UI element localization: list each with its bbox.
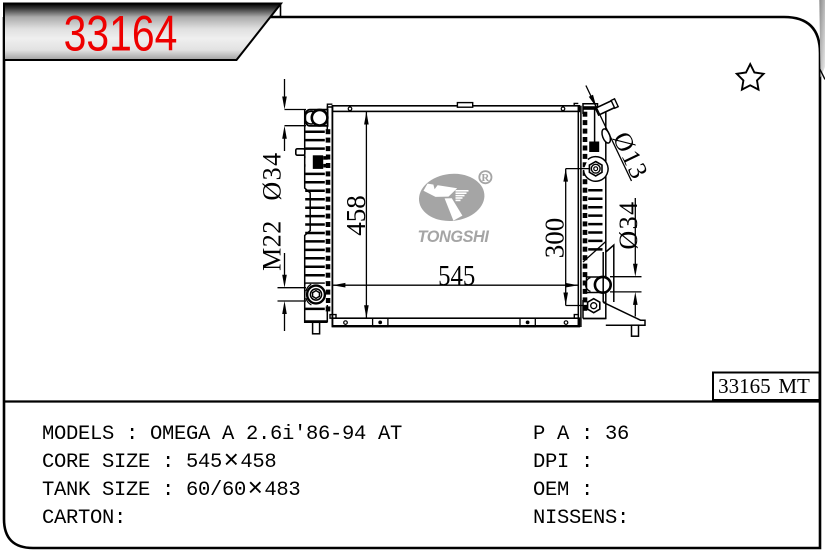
svg-text:M22: M22 (258, 220, 287, 271)
svg-text:TONGSHI: TONGSHI (417, 228, 489, 246)
svg-text:NISSENS:: NISSENS: (533, 507, 629, 530)
svg-text:458: 458 (341, 195, 371, 236)
svg-text:DPI :: DPI : (533, 451, 593, 474)
svg-text:Ø34: Ø34 (258, 151, 287, 200)
svg-text:CARTON:: CARTON: (42, 507, 126, 530)
svg-text:OEM :: OEM : (533, 479, 593, 502)
svg-text:TANK SIZE : 60/60×483: TANK SIZE : 60/60×483 (42, 474, 300, 504)
svg-text:33164: 33164 (64, 4, 178, 61)
svg-text:R: R (481, 172, 490, 184)
svg-text:33165 MT: 33165 MT (718, 374, 810, 398)
svg-text:CORE SIZE : 545×458: CORE SIZE : 545×458 (42, 446, 276, 476)
svg-text:Ø13: Ø13 (607, 127, 654, 184)
svg-text:545: 545 (438, 260, 475, 292)
svg-text:Ø34: Ø34 (614, 200, 643, 249)
svg-text:300: 300 (540, 218, 570, 259)
svg-text:P A : 36: P A : 36 (533, 423, 629, 446)
svg-text:MODELS : OMEGA A 2.6i'86-94 AT: MODELS : OMEGA A 2.6i'86-94 AT (42, 423, 402, 446)
